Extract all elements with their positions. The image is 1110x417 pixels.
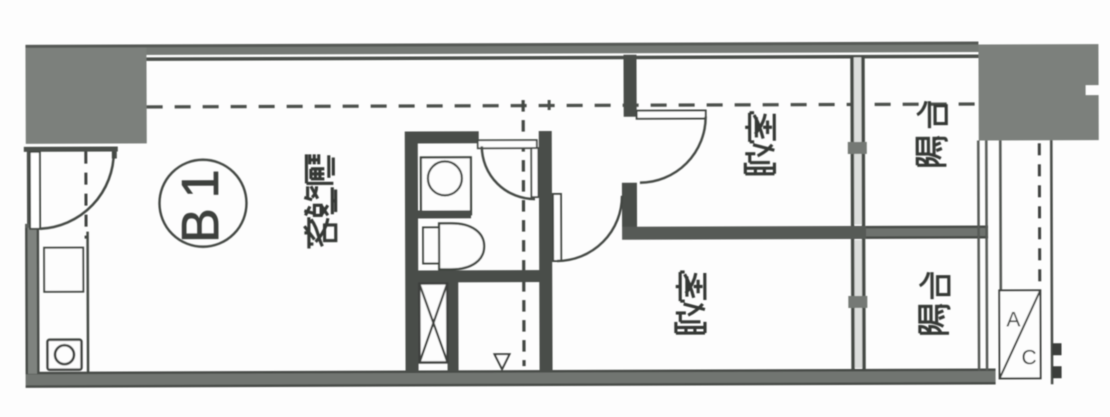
svg-text:B1: B1 [172,159,230,243]
svg-text:C: C [1021,346,1036,369]
svg-text:A: A [1006,308,1020,331]
